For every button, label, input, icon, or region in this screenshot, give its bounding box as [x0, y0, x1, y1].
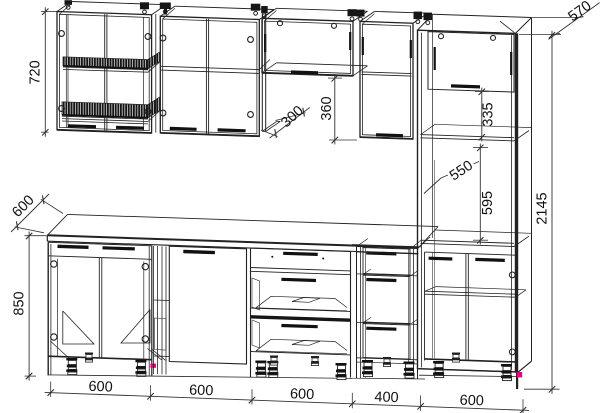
svg-text:335: 335: [481, 102, 497, 126]
svg-text:595: 595: [480, 191, 496, 215]
svg-text:360: 360: [319, 96, 335, 120]
svg-text:600: 600: [189, 382, 214, 399]
svg-text:2145: 2145: [535, 192, 551, 224]
svg-text:720: 720: [28, 60, 44, 84]
svg-text:600: 600: [290, 386, 315, 403]
svg-text:850: 850: [12, 291, 28, 315]
svg-text:600: 600: [88, 379, 113, 396]
svg-text:600: 600: [459, 393, 484, 410]
svg-text:400: 400: [374, 389, 399, 406]
